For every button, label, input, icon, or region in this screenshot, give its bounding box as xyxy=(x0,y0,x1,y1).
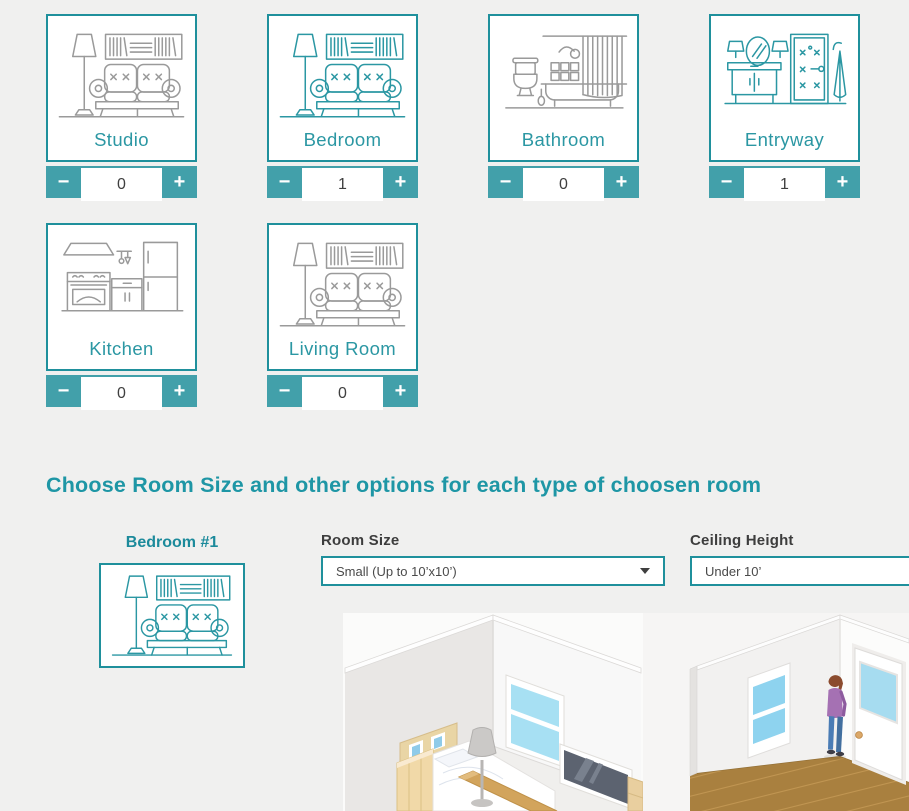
entryway-icon xyxy=(718,28,851,124)
ceiling-height-isometric-preview xyxy=(643,613,909,811)
decrement-button[interactable]: − xyxy=(488,166,523,198)
room-card-body[interactable]: Kitchen xyxy=(46,223,197,371)
room-type-grid: Studio − 0 + Bedroom − 1 + Bathroom xyxy=(46,14,860,407)
room-card-body[interactable]: Entryway xyxy=(709,14,860,162)
room-card-body[interactable]: Living Room xyxy=(267,223,418,371)
room-card-entryway: Entryway − 1 + xyxy=(709,14,860,198)
decrement-button[interactable]: − xyxy=(267,166,302,198)
room-count-stepper: − 1 + xyxy=(709,166,860,198)
decrement-button[interactable]: − xyxy=(46,166,81,198)
room-size-select[interactable]: Small (Up to 10’x10’) xyxy=(321,556,665,586)
kitchen-icon xyxy=(55,237,188,333)
room-card-kitchen: Kitchen − 0 + xyxy=(46,223,197,407)
section-heading: Choose Room Size and other options for e… xyxy=(46,473,761,498)
room-size-isometric-preview xyxy=(343,613,643,811)
ceiling-height-select[interactable]: Under 10’ xyxy=(690,556,909,586)
room-illustration xyxy=(276,225,409,338)
room-count-value[interactable]: 1 xyxy=(302,168,383,201)
chevron-down-icon xyxy=(640,568,650,574)
room-count-stepper: − 0 + xyxy=(267,375,418,407)
room-illustration xyxy=(55,225,188,338)
room-count-value[interactable]: 0 xyxy=(81,377,162,410)
room-card-bedroom: Bedroom − 1 + xyxy=(267,14,418,198)
decrement-button[interactable]: − xyxy=(267,375,302,407)
room-card-body[interactable]: Bedroom xyxy=(267,14,418,162)
room-card-body[interactable]: Studio xyxy=(46,14,197,162)
decrement-button[interactable]: − xyxy=(709,166,744,198)
room-size-label: Room Size xyxy=(321,532,399,549)
room-illustration xyxy=(55,16,188,129)
room-label: Living Room xyxy=(289,338,396,369)
empty-room-isometric-illustration xyxy=(643,613,909,811)
room-illustration xyxy=(497,16,630,129)
room-count-stepper: − 0 + xyxy=(46,375,197,407)
room-label: Kitchen xyxy=(89,338,154,369)
decrement-button[interactable]: − xyxy=(46,375,81,407)
room-card-bathroom: Bathroom − 0 + xyxy=(488,14,639,198)
room-instance-thumbnail xyxy=(99,563,245,668)
room-card-living-room: Living Room − 0 + xyxy=(267,223,418,407)
increment-button[interactable]: + xyxy=(383,166,418,198)
room-configurator-page: Studio − 0 + Bedroom − 1 + Bathroom xyxy=(0,0,909,811)
ceiling-height-label: Ceiling Height xyxy=(690,532,794,549)
sofa-icon xyxy=(276,28,409,124)
room-illustration xyxy=(276,16,409,129)
room-label: Bedroom xyxy=(304,129,382,160)
room-instance-title: Bedroom #1 xyxy=(99,534,245,552)
room-count-value[interactable]: 0 xyxy=(302,377,383,410)
increment-button[interactable]: + xyxy=(383,375,418,407)
room-illustration xyxy=(718,16,851,129)
sofa-icon xyxy=(276,237,409,333)
sofa-icon xyxy=(108,571,236,661)
bedroom-isometric-illustration xyxy=(343,613,643,811)
room-count-stepper: − 0 + xyxy=(488,166,639,198)
room-label: Entryway xyxy=(745,129,824,160)
room-count-value[interactable]: 1 xyxy=(744,168,825,201)
increment-button[interactable]: + xyxy=(162,375,197,407)
room-label: Studio xyxy=(94,129,149,160)
room-card-body[interactable]: Bathroom xyxy=(488,14,639,162)
room-count-stepper: − 0 + xyxy=(46,166,197,198)
room-label: Bathroom xyxy=(522,129,605,160)
sofa-icon xyxy=(55,28,188,124)
increment-button[interactable]: + xyxy=(162,166,197,198)
room-count-stepper: − 1 + xyxy=(267,166,418,198)
room-card-studio: Studio − 0 + xyxy=(46,14,197,198)
increment-button[interactable]: + xyxy=(825,166,860,198)
increment-button[interactable]: + xyxy=(604,166,639,198)
room-count-value[interactable]: 0 xyxy=(81,168,162,201)
bathroom-icon xyxy=(497,28,630,124)
ceiling-height-selected-value: Under 10’ xyxy=(705,564,761,579)
room-count-value[interactable]: 0 xyxy=(523,168,604,201)
room-size-selected-value: Small (Up to 10’x10’) xyxy=(336,564,457,579)
